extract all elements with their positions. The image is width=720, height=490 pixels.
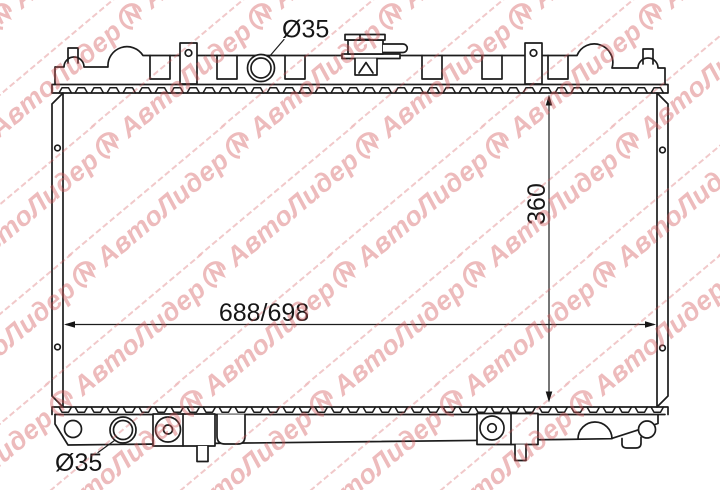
arrow-left <box>64 321 75 328</box>
side-plate-hole <box>55 344 61 350</box>
bottom-port <box>65 421 82 438</box>
side-plate-hole <box>660 147 666 153</box>
side-plate-hole <box>55 145 61 151</box>
drain-peg-left <box>197 446 208 462</box>
arrow-up <box>546 95 553 106</box>
label-core-width: 688/698 <box>219 299 309 327</box>
side-plate-hole <box>660 345 666 351</box>
drain-peg-right <box>515 445 526 461</box>
bracket-hole-left <box>185 50 192 57</box>
arrow-right <box>645 321 656 328</box>
overflow-pipe <box>383 44 407 53</box>
top-tank <box>52 35 668 94</box>
label-filler-neck-diameter: Ø35 <box>282 16 329 44</box>
top-header-plate <box>52 85 668 94</box>
bottom-right-port <box>639 421 656 438</box>
bottom-header-plate <box>52 407 668 415</box>
radiator-diagram-svg: Ø35 688/698 360 Ø35 <box>0 0 720 490</box>
bottom-tank-outline <box>55 415 658 446</box>
bracket-hole-right <box>530 50 537 57</box>
label-core-height: 360 <box>523 183 551 225</box>
top-left-pipe <box>68 48 78 63</box>
core-side-plates <box>52 93 668 407</box>
drain-recess-arc <box>578 422 612 439</box>
bolt-center-left <box>164 425 173 434</box>
label-outlet-diameter: Ø35 <box>55 449 102 477</box>
radiator-technical-drawing: Ø35 688/698 360 Ø35 АвтоЛидерАвтоЛидерАв… <box>0 0 720 490</box>
small-foot-tab <box>622 437 641 448</box>
bottom-tank <box>52 407 668 462</box>
dimension-lines <box>64 40 656 453</box>
side-plate-right <box>657 93 668 407</box>
arrow-down <box>546 392 553 403</box>
cap-body <box>348 40 383 54</box>
top-right-pipe <box>643 49 653 64</box>
side-plate-left <box>52 93 63 407</box>
bolt-center-right <box>488 424 497 433</box>
rounded-lug <box>217 415 245 445</box>
